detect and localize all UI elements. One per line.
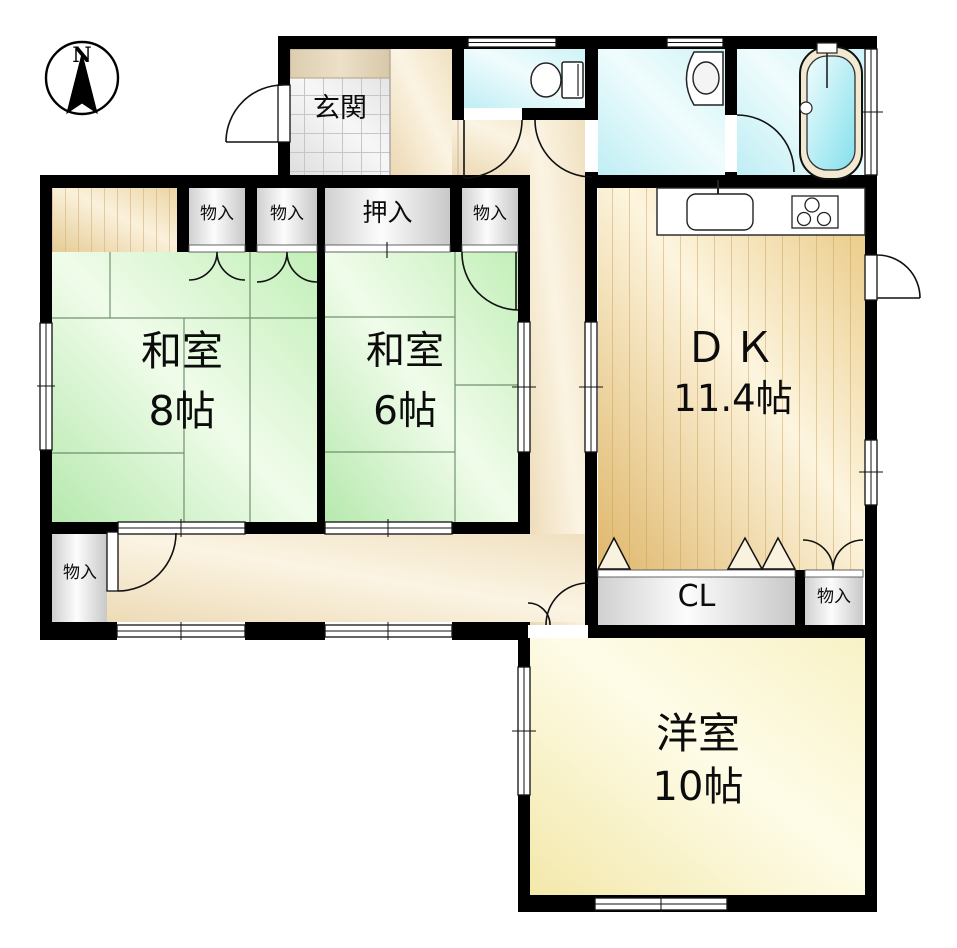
closet-dk-front — [805, 570, 863, 577]
dk-name-label: ＤＫ — [633, 326, 833, 370]
entrance-door-panel — [278, 85, 290, 142]
entrance-door-swing — [226, 85, 283, 142]
bathtub-icon — [800, 43, 862, 179]
washitsu6-name-label: 和室 — [325, 332, 485, 373]
closet-dk-label: 物入 — [805, 589, 863, 607]
wood-alcove-grain — [52, 188, 177, 252]
floor-plan: N 玄関 物入 物入 押入 物入 和室 8帖 和室 6帖 ＤＫ 11.4帖 CL… — [0, 0, 957, 948]
kitchen-counter — [657, 180, 865, 235]
closet-sw-label: 物入 — [52, 565, 108, 583]
kitchen-sink — [687, 194, 753, 230]
toilet-icon — [531, 62, 583, 98]
compass-north-label: N — [72, 42, 91, 67]
washitsu6-size-label: 6帖 — [325, 392, 485, 433]
closet-north1-label: 物入 — [189, 206, 245, 224]
tatami6-floor — [325, 252, 518, 522]
closet-sw-door-panel — [107, 532, 118, 591]
washitsu8-name-label: 和室 — [102, 330, 262, 373]
youshitsu-name-label: 洋室 — [608, 712, 788, 756]
closet-north1-front — [189, 245, 245, 252]
western-room-door-opening — [528, 625, 588, 638]
corridor-floor — [52, 534, 585, 622]
cl-front — [598, 570, 795, 577]
closet-north2-front — [257, 245, 317, 252]
washroom-door-opening — [585, 120, 598, 172]
washitsu8-size-label: 8帖 — [102, 390, 262, 433]
cl-label: CL — [598, 581, 795, 613]
oshiire-label: 押入 — [325, 200, 450, 226]
closet-north2-label: 物入 — [257, 206, 317, 224]
stove-icon — [792, 196, 838, 228]
closet-north3-front — [462, 245, 518, 252]
genkan-label: 玄関 — [292, 95, 388, 123]
bath-faucet-icon — [817, 43, 837, 53]
genkan-step — [290, 49, 390, 78]
toilet-door-opening — [464, 108, 522, 120]
youshitsu-size-label: 10帖 — [608, 766, 788, 808]
bath-door-opening — [725, 115, 737, 172]
genkan-hall-floor — [390, 49, 452, 175]
closet-north3-label: 物入 — [462, 206, 518, 224]
washbasin-icon — [687, 52, 724, 105]
compass: N — [46, 42, 118, 114]
dk-back-door-swing — [877, 255, 920, 298]
dk-size-label: 11.4帖 — [633, 380, 833, 419]
dk-back-door-panel — [865, 255, 877, 300]
floor-plan-drawing: N — [0, 0, 957, 948]
